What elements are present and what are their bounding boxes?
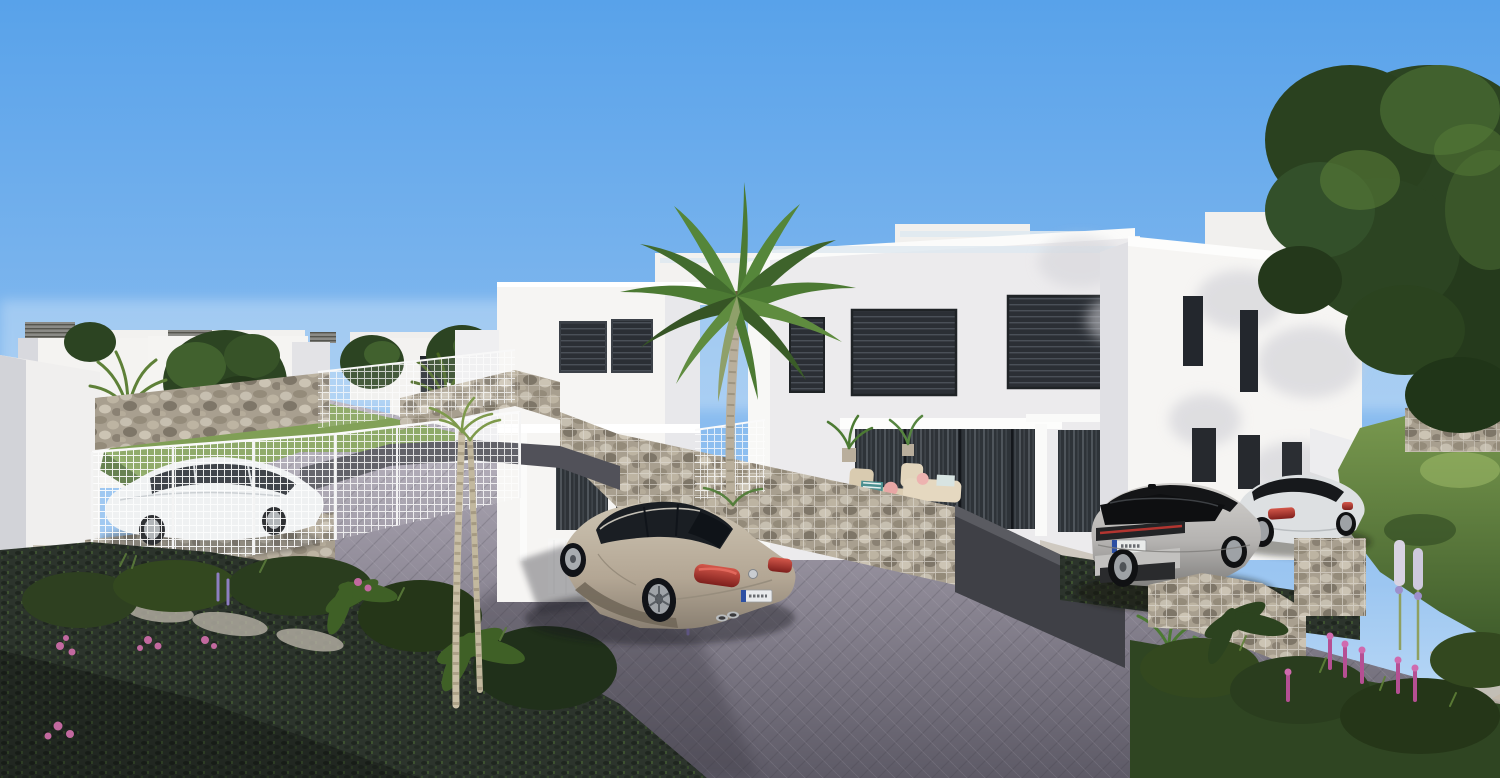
render-viewport: 3D architectural render of a new-build r… xyxy=(0,0,1500,778)
scene-render xyxy=(0,0,1500,778)
